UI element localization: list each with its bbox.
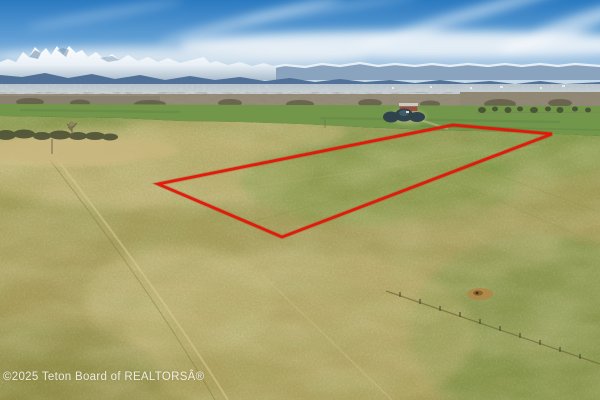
aerial-property-photo: ©2025 Teton Board of REALTORSÂ®: [0, 0, 600, 400]
dirt-patch: [467, 288, 493, 300]
copyright-watermark: ©2025 Teton Board of REALTORSÂ®: [3, 371, 204, 383]
farmhouse-glint: [406, 111, 409, 113]
photo-canvas: [0, 0, 600, 400]
distant-mountain-range: [268, 63, 600, 80]
